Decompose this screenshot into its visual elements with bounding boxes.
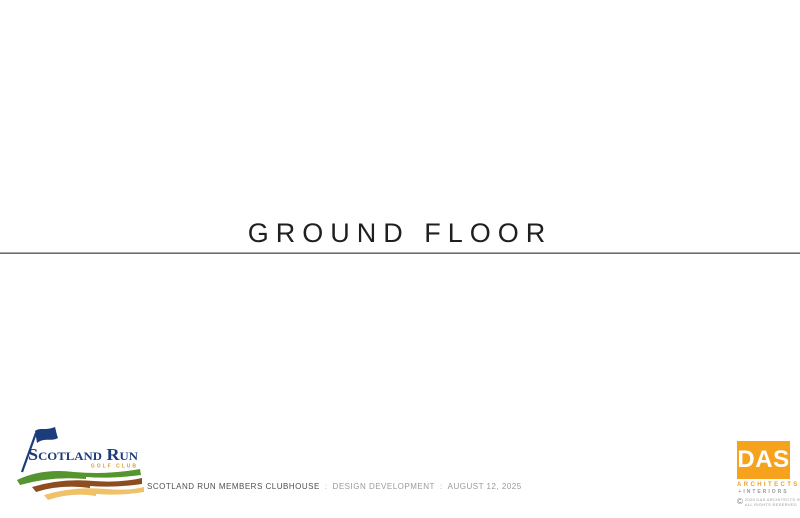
footer-date: AUGUST 12, 2025 xyxy=(448,482,522,491)
footer-project-name: SCOTLAND RUN MEMBERS CLUBHOUSE xyxy=(147,482,320,491)
scotland-run-wordmark: Scotland Run xyxy=(28,445,138,464)
scotland-run-logo-graphic: Scotland Run GOLF CLUB xyxy=(14,426,148,508)
das-architects-label: ARCHITECTS xyxy=(737,482,790,488)
footer-phase: DESIGN DEVELOPMENT xyxy=(333,482,435,491)
das-logo-square: DAS xyxy=(737,441,790,479)
das-architects-logo: DAS ARCHITECTS +INTERIORS © 2025 DAS ARC… xyxy=(737,441,790,507)
copyright-icon: © xyxy=(737,498,743,506)
das-initials: DAS xyxy=(737,446,789,474)
das-copyright-line2: ALL RIGHTS RESERVED xyxy=(745,502,797,507)
sheet-footer-caption: SCOTLAND RUN MEMBERS CLUBHOUSE:DESIGN DE… xyxy=(147,482,522,491)
das-copyright-text: 2025 DAS ARCHITECTS INC. ALL RIGHTS RESE… xyxy=(745,497,800,507)
page-title: GROUND FLOOR xyxy=(0,218,800,249)
scotland-run-logo: Scotland Run GOLF CLUB xyxy=(14,426,148,508)
title-divider-line xyxy=(0,252,800,254)
das-copyright-row: © 2025 DAS ARCHITECTS INC. ALL RIGHTS RE… xyxy=(737,497,790,507)
footer-separator-1: : xyxy=(320,482,333,491)
fairway-stripes-graphic xyxy=(17,469,144,500)
scotland-run-subtitle: GOLF CLUB xyxy=(91,464,138,470)
das-interiors-label: +INTERIORS xyxy=(737,489,790,495)
footer-separator-2: : xyxy=(435,482,448,491)
